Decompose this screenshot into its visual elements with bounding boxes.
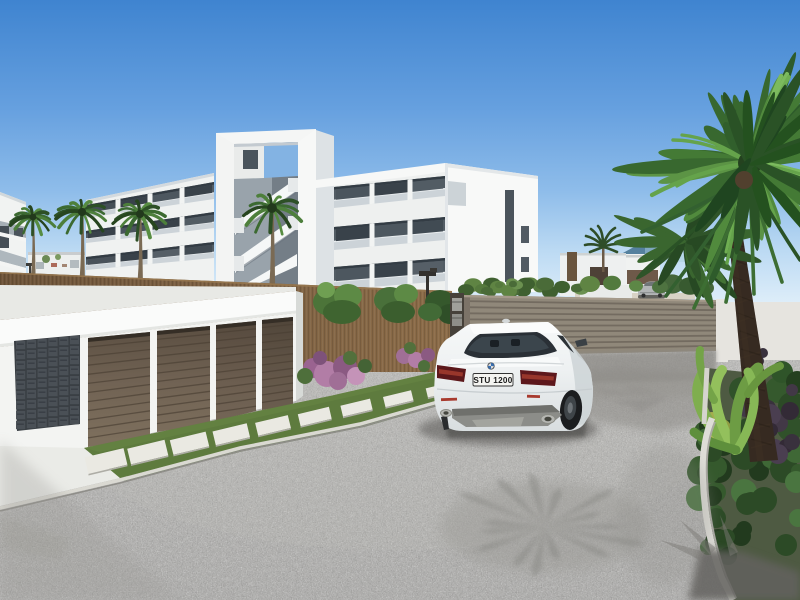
svg-text:STU 1200: STU 1200 bbox=[473, 376, 512, 385]
